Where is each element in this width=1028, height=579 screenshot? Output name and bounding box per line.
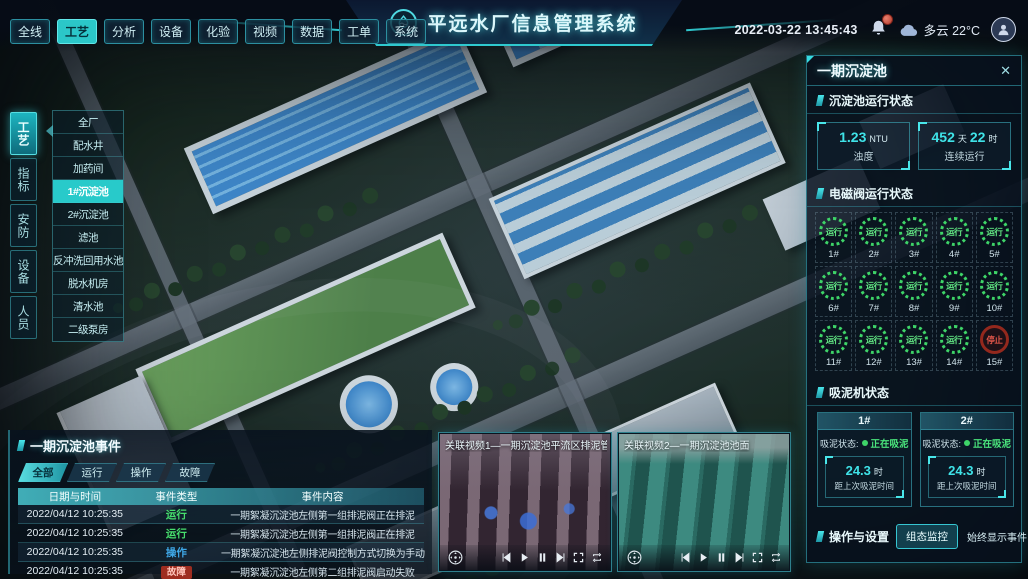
video-2-title: 关联视频2—一期沉淀池池面 <box>624 437 786 452</box>
top-nav-tab[interactable]: 视频 <box>245 19 285 44</box>
turbidity-stat: 1.23 NTU 浊度 <box>817 122 910 170</box>
loop-icon[interactable] <box>770 552 782 563</box>
valve-status: 运行 <box>866 280 882 292</box>
events-filter-tabs: 全部 运行 操作 故障 <box>10 460 432 487</box>
valve-gauge-ring: 运行 <box>980 271 1009 300</box>
valve-status: 运行 <box>946 334 962 346</box>
weather-widget: 多云 22°C <box>899 20 980 39</box>
submenu-item-label: 2#沉淀池 <box>68 207 109 222</box>
valve-gauge-ring: 运行 <box>940 325 969 354</box>
valve-gauge-ring: 运行 <box>980 217 1009 246</box>
valve-id: 4# <box>949 249 960 260</box>
submenu-item[interactable]: 二级泵房 <box>53 318 123 341</box>
ptz-dpad-icon[interactable] <box>447 549 464 566</box>
app-window: 全线 工艺 分析 设备 化验 视频 数据 <box>0 0 1028 579</box>
top-nav-tab[interactable]: 工单 <box>339 19 379 44</box>
turbidity-value: 1.23 <box>839 129 866 145</box>
valve-status: 运行 <box>986 280 1002 292</box>
valve-status: 运行 <box>826 280 842 292</box>
side-tab-strip: 工艺 指标 安防 设备 人员 <box>10 112 37 339</box>
valve-gauge: 运行 8# <box>895 266 932 317</box>
section-accent-icon <box>816 387 824 398</box>
valve-id: 15# <box>986 357 1002 368</box>
events-panel-title: 一期沉淀池事件 <box>10 430 432 460</box>
mud-machine-cards: 1# 吸泥状态: 正在吸泥 24.3时 距上次吸泥时间 2# 吸泥状态: <box>807 406 1021 515</box>
fullscreen-icon[interactable] <box>573 552 584 563</box>
fullscreen-icon[interactable] <box>752 552 763 563</box>
column-header-content: 事件内容 <box>221 489 424 504</box>
user-avatar[interactable] <box>991 17 1016 42</box>
events-table-header: 日期与时间 事件类型 事件内容 <box>18 488 424 505</box>
skip-forward-icon[interactable] <box>734 552 745 563</box>
event-type-badge: 操作 <box>132 545 221 560</box>
submenu-item-label: 1#沉淀池 <box>68 184 109 199</box>
valve-gauge-ring: 停止 <box>980 325 1009 354</box>
mud-time-box: 24.3时 距上次吸泥时间 <box>928 456 1007 498</box>
top-nav-tab[interactable]: 工艺 <box>57 19 97 44</box>
valve-status: 运行 <box>826 334 842 346</box>
event-time: 2022/04/12 10:25:35 <box>18 508 132 520</box>
top-nav-tab[interactable]: 系统 <box>386 19 426 44</box>
valve-id: 14# <box>946 357 962 368</box>
event-content: 一期絮凝沉淀池左侧第二组排泥阀启动失败 <box>221 564 424 579</box>
top-nav-tab-label: 全线 <box>18 23 42 40</box>
events-filter-tab[interactable]: 运行 <box>67 463 117 482</box>
side-tab[interactable]: 人员 <box>10 296 37 339</box>
events-filter-tab[interactable]: 全部 <box>18 463 68 482</box>
valve-status: 运行 <box>906 280 922 292</box>
submenu-item[interactable]: 配水井 <box>53 134 123 157</box>
side-tab[interactable]: 设备 <box>10 250 37 293</box>
section-title-mud: 吸泥机状态 <box>807 378 1021 406</box>
valve-gauge-ring: 运行 <box>859 217 888 246</box>
submenu-item-label: 反冲洗回用水池 <box>53 253 123 268</box>
section-title-valves: 电磁阀运行状态 <box>807 179 1021 207</box>
top-nav-tab-label: 视频 <box>253 23 277 40</box>
top-nav-tab[interactable]: 化验 <box>198 19 238 44</box>
top-nav-tab-label: 工艺 <box>65 23 89 40</box>
submenu-item-label: 配水井 <box>73 138 103 153</box>
status-dot-icon <box>964 440 970 446</box>
valve-gauge-ring: 运行 <box>819 271 848 300</box>
section-accent-icon <box>17 440 25 451</box>
valve-grid: 运行 1# 运行 2# 运行 3# <box>807 207 1021 378</box>
valve-gauge: 运行 13# <box>895 320 932 371</box>
events-panel: 一期沉淀池事件 全部 运行 操作 故障 <box>8 430 432 574</box>
runtime-stat: 452 天 22 时 连续运行 <box>918 122 1011 170</box>
section-accent-icon <box>816 188 824 199</box>
valve-gauge: 运行 1# <box>815 212 852 263</box>
events-filter-tab[interactable]: 操作 <box>116 463 166 482</box>
event-content: 一期絮凝沉淀池左侧第一组排泥阀正在排泥 <box>221 526 424 541</box>
loop-icon[interactable] <box>591 552 603 563</box>
runtime-hours: 22 <box>970 129 986 145</box>
status-dot-icon <box>862 440 868 446</box>
top-nav-tab[interactable]: 设备 <box>151 19 191 44</box>
submenu-item-label: 脱水机房 <box>68 276 108 291</box>
event-row: 2022/04/12 10:25:35 运行 一期絮凝沉淀池左侧第一组排泥阀正在… <box>18 505 424 524</box>
ptz-dpad-icon[interactable] <box>626 549 643 566</box>
side-tab-label: 工艺 <box>15 121 32 147</box>
events-filter-tab-label: 操作 <box>131 465 152 480</box>
detail-panel: 一期沉淀池 ✕ 沉淀池运行状态 1.23 NTU 浊度 452 天 22 时 <box>806 55 1022 563</box>
runtime-label: 连续运行 <box>945 148 985 163</box>
mud-time-label: 距上次吸泥时间 <box>835 480 895 492</box>
events-filter-tab-label: 故障 <box>180 465 201 480</box>
events-filter-tab[interactable]: 故障 <box>165 463 215 482</box>
top-nav-tab-label: 系统 <box>394 23 418 40</box>
pause-icon[interactable] <box>716 552 727 563</box>
valve-id: 9# <box>949 303 960 314</box>
valve-gauge: 运行 11# <box>815 320 852 371</box>
scada-monitor-button[interactable]: 组态监控 <box>896 524 958 549</box>
valve-gauge: 停止 15# <box>976 320 1013 371</box>
play-icon[interactable] <box>698 552 709 563</box>
valve-id: 13# <box>906 357 922 368</box>
cloud-icon <box>899 23 919 37</box>
valve-id: 3# <box>909 249 920 260</box>
mud-time-label: 距上次吸泥时间 <box>937 480 997 492</box>
submenu-item-label: 清水池 <box>73 299 103 314</box>
valve-status: 运行 <box>906 226 922 238</box>
mud-machine-id: 2# <box>921 413 1014 430</box>
valve-status: 运行 <box>946 280 962 292</box>
top-nav-tab[interactable]: 全线 <box>10 19 50 44</box>
operations-row: 操作与设置 组态监控 始终显示事件： <box>807 515 1021 558</box>
valve-gauge-ring: 运行 <box>859 325 888 354</box>
turbidity-label: 浊度 <box>854 148 874 163</box>
top-nav-tab[interactable]: 数据 <box>292 19 332 44</box>
events-table-body: 2022/04/12 10:25:35 运行 一期絮凝沉淀池左侧第一组排泥阀正在… <box>18 505 424 579</box>
video-2-controls <box>619 545 789 570</box>
column-header-time: 日期与时间 <box>18 489 132 504</box>
detail-panel-title: 一期沉淀池 <box>817 61 887 81</box>
events-filter-tab-label: 全部 <box>33 465 54 480</box>
submenu-item[interactable]: 滤池 <box>53 226 123 249</box>
side-tab-label: 人员 <box>15 305 32 331</box>
column-header-type: 事件类型 <box>132 489 221 504</box>
mud-time-value: 24.3时 <box>846 463 883 478</box>
valve-gauge-ring: 运行 <box>899 325 928 354</box>
event-row: 2022/04/12 10:25:35 故障 一期絮凝沉淀池左侧第二组排泥阀启动… <box>18 562 424 579</box>
top-nav-tab-label: 设备 <box>159 23 183 40</box>
valve-gauge-ring: 运行 <box>899 217 928 246</box>
side-tab-label: 指标 <box>15 167 32 193</box>
skip-forward-icon[interactable] <box>555 552 566 563</box>
submenu-item-label: 全厂 <box>78 115 98 130</box>
top-nav: 全线 工艺 分析 设备 化验 视频 数据 <box>10 19 426 44</box>
submenu-item[interactable]: 脱水机房 <box>53 272 123 295</box>
mud-machine-card: 1# 吸泥状态: 正在吸泥 24.3时 距上次吸泥时间 <box>817 412 912 507</box>
top-nav-tab-label: 化验 <box>206 23 230 40</box>
valve-id: 8# <box>909 303 920 314</box>
video-1-controls <box>440 545 610 570</box>
datetime-label: 2022-03-22 13:45:43 <box>734 23 857 37</box>
valve-gauge: 运行 4# <box>936 212 973 263</box>
skip-back-icon[interactable] <box>680 552 691 563</box>
valve-status: 运行 <box>986 226 1002 238</box>
side-tab[interactable]: 安防 <box>10 204 37 247</box>
notification-badge <box>882 14 893 25</box>
mud-machine-id: 1# <box>818 413 911 430</box>
side-tab[interactable]: 工艺 <box>10 112 37 155</box>
skip-back-icon[interactable] <box>501 552 512 563</box>
running-status-stats: 1.23 NTU 浊度 452 天 22 时 连续运行 <box>807 114 1021 179</box>
section-accent-icon <box>816 531 824 542</box>
valve-id: 6# <box>828 303 839 314</box>
side-tab[interactable]: 指标 <box>10 158 37 201</box>
event-row: 2022/04/12 10:25:35 运行 一期絮凝沉淀池左侧第一组排泥阀正在… <box>18 524 424 543</box>
submenu-item-label: 二级泵房 <box>68 322 108 337</box>
submenu-item[interactable]: 1#沉淀池 <box>53 180 123 203</box>
submenu-item[interactable]: 反冲洗回用水池 <box>53 249 123 272</box>
mud-time-box: 24.3时 距上次吸泥时间 <box>825 456 904 498</box>
valve-gauge: 运行 9# <box>936 266 973 317</box>
valve-gauge-ring: 运行 <box>940 217 969 246</box>
events-filter-tab-label: 运行 <box>82 465 103 480</box>
event-time: 2022/04/12 10:25:35 <box>18 546 132 558</box>
valve-gauge-ring: 运行 <box>819 217 848 246</box>
detail-panel-header: 一期沉淀池 ✕ <box>807 56 1021 86</box>
side-tab-label: 安防 <box>15 213 32 239</box>
events-table: 日期与时间 事件类型 事件内容 2022/04/12 10:25:35 运行 一… <box>18 488 424 579</box>
section-title-ops: 操作与设置 <box>817 528 889 545</box>
round-pond <box>423 355 486 418</box>
submenu-item-label: 加药间 <box>73 161 103 176</box>
header-right: 2022-03-22 13:45:43 多云 22°C <box>734 17 1016 42</box>
mud-machine-status: 吸泥状态: 正在吸泥 <box>818 430 911 454</box>
weather-label: 多云 22°C <box>924 20 980 39</box>
pause-icon[interactable] <box>537 552 548 563</box>
event-time: 2022/04/12 10:25:35 <box>18 565 132 577</box>
event-time: 2022/04/12 10:25:35 <box>18 527 132 539</box>
valve-id: 7# <box>869 303 880 314</box>
valve-gauge-ring: 运行 <box>859 271 888 300</box>
valve-gauge: 运行 3# <box>895 212 932 263</box>
event-content: 一期絮凝沉淀池左侧排泥阀控制方式切换为手动 <box>221 545 424 560</box>
valve-id: 1# <box>828 249 839 260</box>
valve-status: 运行 <box>946 226 962 238</box>
valve-gauge: 运行 5# <box>976 212 1013 263</box>
valve-id: 12# <box>866 357 882 368</box>
submenu-item[interactable]: 2#沉淀池 <box>53 203 123 226</box>
valve-gauge: 运行 14# <box>936 320 973 371</box>
event-row: 2022/04/12 10:25:35 操作 一期絮凝沉淀池左侧排泥阀控制方式切… <box>18 543 424 562</box>
close-icon[interactable]: ✕ <box>1000 64 1011 77</box>
mud-machine-status: 吸泥状态: 正在吸泥 <box>921 430 1014 454</box>
top-nav-tab-label: 数据 <box>300 23 324 40</box>
valve-gauge-ring: 运行 <box>819 325 848 354</box>
valve-status: 运行 <box>826 226 842 238</box>
submenu-item-label: 滤池 <box>78 230 98 245</box>
valve-gauge: 运行 2# <box>855 212 892 263</box>
valve-gauge-ring: 运行 <box>899 271 928 300</box>
runtime-days: 452 <box>932 129 955 145</box>
submenu-item[interactable]: 加药间 <box>53 157 123 180</box>
valve-id: 10# <box>986 303 1002 314</box>
valve-gauge: 运行 7# <box>855 266 892 317</box>
play-icon[interactable] <box>519 552 530 563</box>
video-1-title: 关联视频1—一期沉淀池平流区排泥管廊 <box>445 437 607 452</box>
valve-status: 运行 <box>866 226 882 238</box>
event-type-badge: 运行 <box>132 507 221 522</box>
mud-machine-card: 2# 吸泥状态: 正在吸泥 24.3时 距上次吸泥时间 <box>920 412 1015 507</box>
top-nav-tab[interactable]: 分析 <box>104 19 144 44</box>
video-panel-2: 关联视频2—一期沉淀池池面 <box>617 432 791 572</box>
submenu-item[interactable]: 清水池 <box>53 295 123 318</box>
event-type-badge: 运行 <box>132 526 221 541</box>
show-events-toggle-label: 始终显示事件： <box>967 529 1028 544</box>
section-accent-icon <box>816 95 824 106</box>
mud-time-value: 24.3时 <box>948 463 985 478</box>
notification-bell-icon[interactable] <box>869 18 888 42</box>
tree-row <box>491 318 504 331</box>
app-title: 平远水厂信息管理系统 <box>427 9 637 36</box>
top-nav-tab-label: 工单 <box>347 23 371 40</box>
valve-status: 运行 <box>906 334 922 346</box>
valve-id: 5# <box>989 249 1000 260</box>
valve-gauge: 运行 10# <box>976 266 1013 317</box>
event-type-badge: 故障 <box>132 564 221 578</box>
valve-id: 11# <box>826 357 841 368</box>
valve-gauge-ring: 运行 <box>940 271 969 300</box>
valve-gauge: 运行 6# <box>815 266 852 317</box>
turbidity-unit: NTU <box>869 134 888 144</box>
process-submenu: 全厂 配水井 加药间 1#沉淀池 2#沉淀池 滤池 反冲洗回用水池 <box>52 110 124 342</box>
event-content: 一期絮凝沉淀池左侧第一组排泥阀正在排泥 <box>221 507 424 522</box>
side-tab-label: 设备 <box>15 259 32 285</box>
valve-gauge: 运行 12# <box>855 320 892 371</box>
valve-id: 2# <box>869 249 880 260</box>
valve-status: 运行 <box>866 334 882 346</box>
valve-status: 停止 <box>986 334 1002 346</box>
section-title-running-status: 沉淀池运行状态 <box>807 86 1021 114</box>
video-panel-1: 关联视频1—一期沉淀池平流区排泥管廊 <box>438 432 612 572</box>
top-nav-tab-label: 分析 <box>112 23 136 40</box>
submenu-item[interactable]: 全厂 <box>53 111 123 134</box>
